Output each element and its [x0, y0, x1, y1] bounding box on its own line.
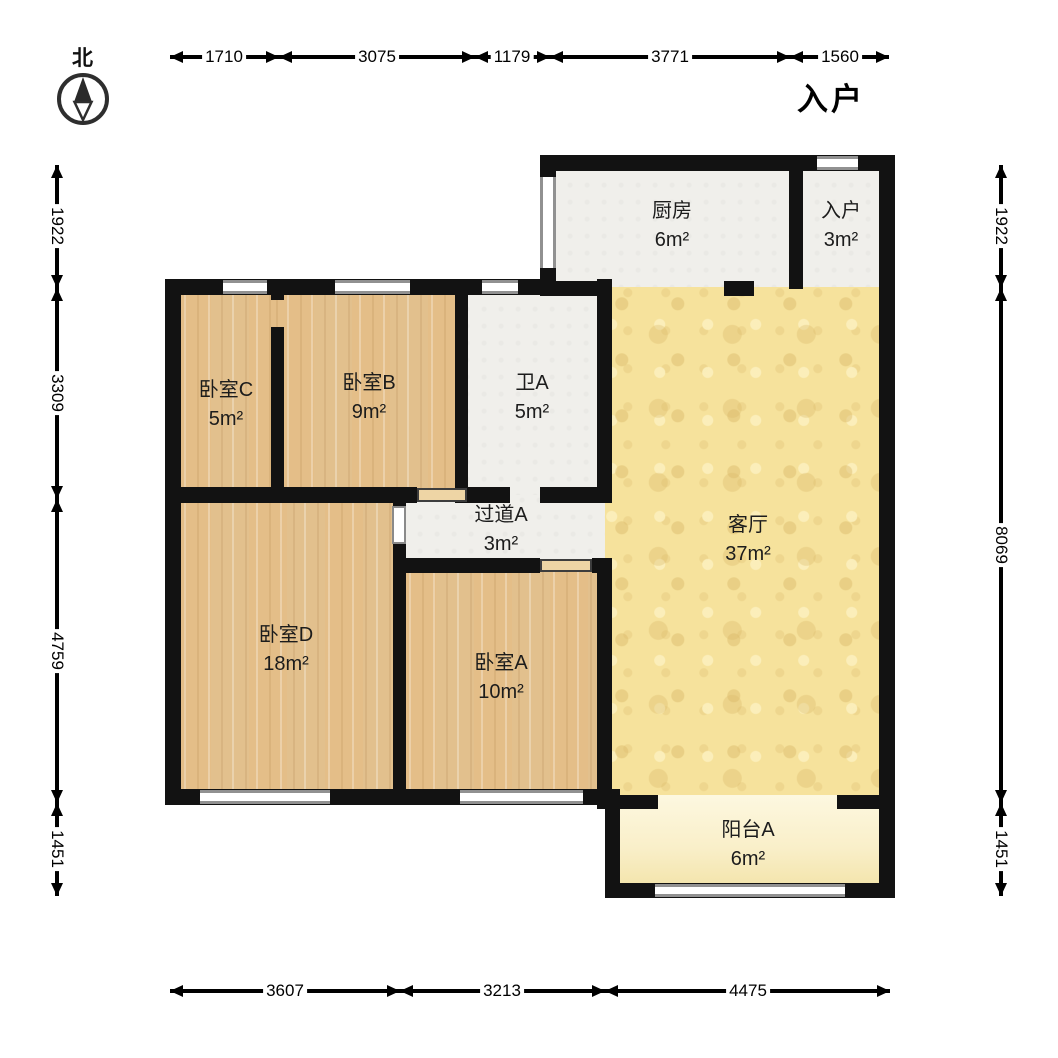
wall-bedroom-da-divider: [393, 558, 406, 805]
wall-kitchen-bottom-stub-mid: [724, 281, 754, 296]
dim-label: 3607: [263, 981, 307, 1001]
arrow-down-icon: [51, 883, 63, 896]
room-name: 厨房: [652, 197, 692, 226]
window-balcony-a: [655, 884, 845, 897]
dim-label: 3075: [355, 47, 399, 67]
dim-label: 8069: [991, 523, 1011, 567]
wall-kitchen-entry-divider: [789, 155, 803, 289]
arrow-right-icon: [876, 51, 889, 63]
dimension-line-top: 1710 3075 1179 3771 1560: [170, 47, 889, 67]
room-label-kitchen: 厨房 6m²: [652, 197, 692, 255]
room-label-bedroom-b: 卧室B 9m²: [342, 369, 395, 427]
arrow-right-icon: [877, 985, 890, 997]
entry-marker-title: 入户: [797, 74, 865, 119]
room-area: 6m²: [652, 226, 692, 255]
window-kitchen: [540, 177, 556, 268]
room-area: 3m²: [474, 530, 527, 559]
room-label-entry: 入户 3m²: [821, 197, 861, 255]
tick-icon: [387, 985, 413, 997]
dimension-line-left: 1922 3309 4759 1451: [47, 165, 67, 896]
room-name: 入户: [821, 197, 861, 226]
room-name: 卧室C: [199, 376, 253, 405]
door-bedroom-b: [417, 488, 467, 502]
wall-living-balcony-stub-right: [837, 795, 895, 809]
room-label-bath-a: 卫A 5m²: [515, 369, 549, 427]
arrow-up-icon: [995, 165, 1007, 178]
wall-living-left-upper: [597, 279, 612, 503]
window-bedroom-c: [223, 280, 267, 294]
dim-label: 1922: [47, 204, 67, 248]
dim-label: 1710: [202, 47, 246, 67]
dim-label: 1922: [991, 204, 1011, 248]
tick-icon: [51, 275, 63, 301]
room-area: 5m²: [199, 405, 253, 434]
dim-label: 1451: [47, 827, 67, 871]
dim-label: 4475: [726, 981, 770, 1001]
tick-icon: [51, 486, 63, 512]
dim-label: 1451: [991, 827, 1011, 871]
compass-icon: [54, 70, 112, 128]
wall-middle-left: [165, 487, 417, 503]
dim-label: 3213: [480, 981, 524, 1001]
wall-living-balcony-stub-left: [597, 795, 658, 809]
dimension-line-bottom: 3607 3213 4475: [170, 981, 890, 1001]
window-bedroom-b: [335, 280, 410, 294]
room-name: 卧室A: [474, 649, 527, 678]
arrow-up-icon: [51, 165, 63, 178]
wall-bedroom-cb-stub: [271, 279, 284, 300]
room-name: 过道A: [474, 501, 527, 530]
tick-icon: [995, 275, 1007, 301]
room-name: 客厅: [725, 511, 771, 540]
door-bedroom-d: [392, 506, 406, 544]
tick-icon: [537, 51, 563, 63]
wall-left-outer: [165, 279, 181, 805]
wall-right-outer: [879, 155, 895, 898]
room-area: 9m²: [342, 398, 395, 427]
dim-label: 3309: [47, 371, 67, 415]
tick-icon: [995, 790, 1007, 816]
arrow-left-icon: [170, 985, 183, 997]
room-name: 卧室B: [342, 369, 395, 398]
room-area: 18m²: [259, 650, 313, 679]
room-name: 阳台A: [721, 816, 774, 845]
north-label: 北: [72, 42, 93, 72]
dim-label: 3771: [648, 47, 692, 67]
dim-label: 1179: [491, 47, 534, 67]
room-label-hallway-a: 过道A 3m²: [474, 501, 527, 559]
room-label-bedroom-c: 卧室C 5m²: [199, 376, 253, 434]
window-bath-a: [482, 280, 518, 294]
room-area: 10m²: [474, 678, 527, 707]
room-area: 3m²: [821, 226, 861, 255]
room-area: 5m²: [515, 398, 549, 427]
room-area: 6m²: [721, 845, 774, 874]
door-entry-top: [817, 156, 858, 170]
arrow-down-icon: [995, 883, 1007, 896]
room-area: 37m²: [725, 540, 771, 569]
wall-living-left-lower: [597, 558, 612, 805]
window-bedroom-a: [460, 790, 583, 804]
dim-label: 4759: [47, 629, 67, 673]
wall-bedroom-b-bath-divider: [455, 279, 468, 503]
tick-icon: [592, 985, 618, 997]
door-bedroom-a: [540, 559, 592, 572]
arrow-left-icon: [170, 51, 183, 63]
dimension-line-right: 1922 8069 1451: [991, 165, 1011, 896]
floor-plan: 北 入户 厨房: [0, 0, 1058, 1058]
window-bedroom-d: [200, 790, 330, 804]
room-label-living: 客厅 37m²: [725, 511, 771, 569]
room-name: 卫A: [515, 369, 549, 398]
room-label-balcony-a: 阳台A 6m²: [721, 816, 774, 874]
room-name: 卧室D: [259, 621, 313, 650]
tick-icon: [266, 51, 292, 63]
wall-hallway-bottom-left: [393, 558, 540, 573]
wall-bedroom-cb-divider: [271, 327, 284, 501]
room-label-bedroom-d: 卧室D 18m²: [259, 621, 313, 679]
tick-icon: [51, 790, 63, 816]
tick-icon: [462, 51, 488, 63]
tick-icon: [777, 51, 803, 63]
room-label-bedroom-a: 卧室A 10m²: [474, 649, 527, 707]
dim-label: 1560: [818, 47, 862, 67]
